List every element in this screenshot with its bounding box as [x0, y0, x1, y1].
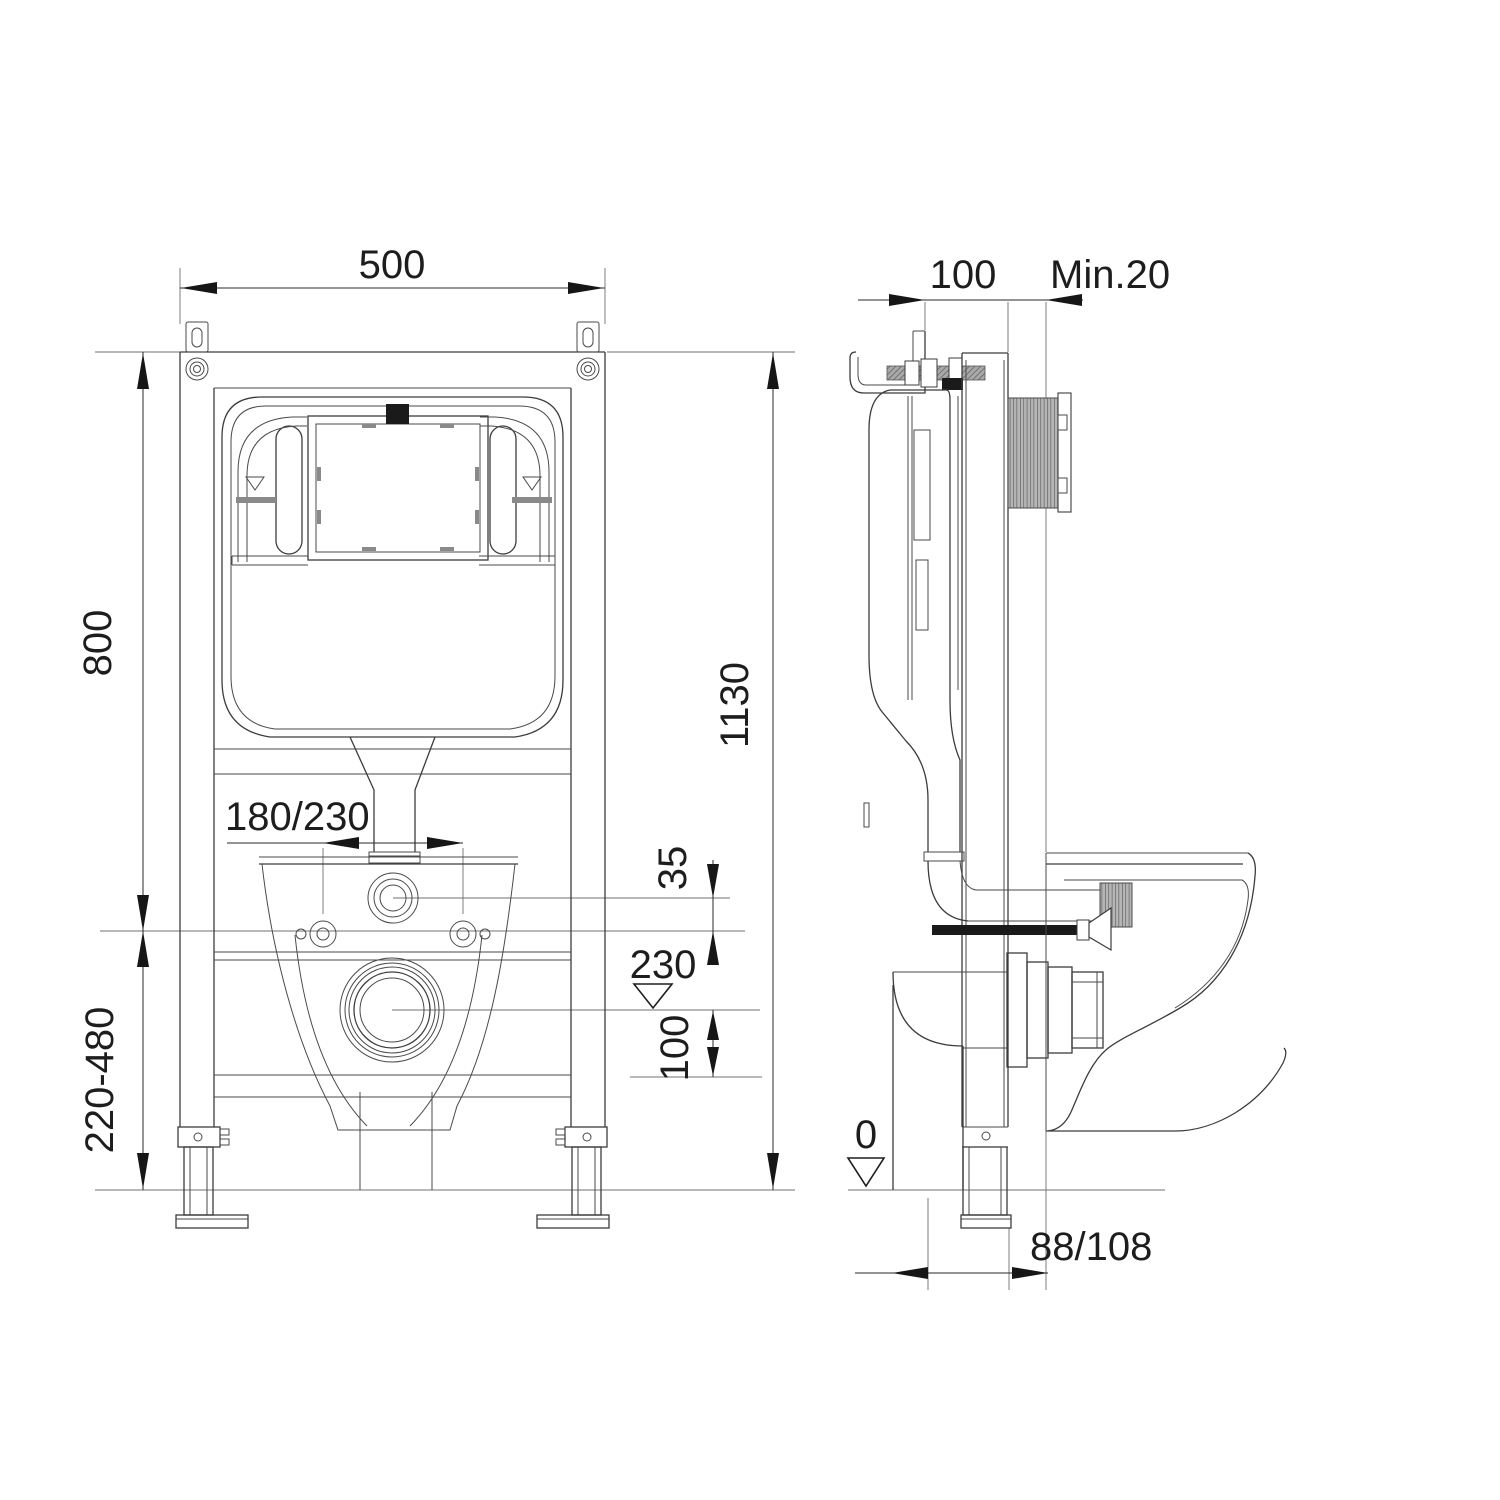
- panel-plug: [386, 404, 409, 424]
- corner-screw-right: [577, 358, 599, 380]
- dim-floor-level: 0: [848, 1113, 884, 1186]
- dim-upper-height: 800: [76, 352, 149, 931]
- drain-pipe-front: [360, 1092, 432, 1190]
- dim-label-total-height: 1130: [713, 662, 757, 748]
- level-triangle-0: [848, 1158, 884, 1186]
- hanger-tab-left: [186, 322, 208, 352]
- drain-elbow: [893, 972, 963, 1046]
- dim-label-upper-height: 800: [76, 610, 120, 677]
- side-view: 100 Min.20 0 88/108: [848, 253, 1286, 1290]
- hanger-tab-right: [577, 322, 599, 352]
- corner-screw-left: [186, 358, 208, 380]
- dim-drain-level: 230: [630, 943, 697, 1008]
- dim-label-min-wall: Min.20: [1050, 253, 1170, 297]
- level-triangle-230: [634, 984, 672, 1008]
- dim-label-drain-drop: 100: [653, 1015, 697, 1082]
- fixing-stud: [932, 908, 1111, 950]
- dim-label-inlet-offset: 35: [651, 846, 695, 891]
- installation-drawing: 500 800 220-480 1130 180/230: [0, 0, 1500, 1500]
- dim-width: 500: [180, 243, 605, 294]
- dim-outlet-offset: 88/108: [855, 1225, 1152, 1279]
- fixing-hole-right: [450, 921, 490, 947]
- dim-adjustable-range: 220-480: [78, 931, 149, 1190]
- dim-label-outlet-offset: 88/108: [1030, 1225, 1152, 1269]
- access-panel: [308, 404, 488, 560]
- slot-left: [276, 426, 302, 554]
- fixing-hole-left: [296, 921, 336, 947]
- dim-label-adjustable-range: 220-480: [78, 1007, 122, 1154]
- dim-label-floor-level: 0: [855, 1113, 877, 1157]
- dim-drain-drop: 100: [653, 1010, 719, 1081]
- mounting-frame: [176, 322, 609, 1228]
- dim-min-wall: Min.20: [1046, 253, 1170, 306]
- dim-label-drain-level: 230: [630, 943, 697, 987]
- foot-left: [176, 1127, 248, 1228]
- dim-label-width: 500: [359, 243, 426, 287]
- side-reference-lines: [848, 302, 1165, 1290]
- dim-fixing-spacing: 180/230: [225, 795, 463, 849]
- toilet-bowl-side: [1046, 853, 1286, 1131]
- water-level-mark-left: [236, 477, 276, 503]
- cistern-side: [864, 390, 964, 861]
- frame-profile-side: [961, 353, 1011, 1228]
- toilet-bowl-front: [259, 857, 518, 1190]
- dim-label-frame-depth: 100: [930, 253, 997, 297]
- cistern-front: [222, 397, 563, 863]
- front-view: 500 800 220-480 1130 180/230: [76, 243, 795, 1228]
- rubber-pad: [942, 378, 963, 390]
- drain-assembly-side: [893, 953, 1103, 1190]
- technical-drawing-page: 500 800 220-480 1130 180/230: [0, 0, 1500, 1500]
- dim-label-fixing-spacing: 180/230: [225, 795, 370, 839]
- foot-right: [537, 1127, 609, 1228]
- ribbed-sleeve: [1008, 393, 1071, 512]
- slot-right: [490, 426, 516, 554]
- dim-total-height: 1130: [713, 352, 779, 1190]
- water-level-mark-right: [512, 477, 552, 503]
